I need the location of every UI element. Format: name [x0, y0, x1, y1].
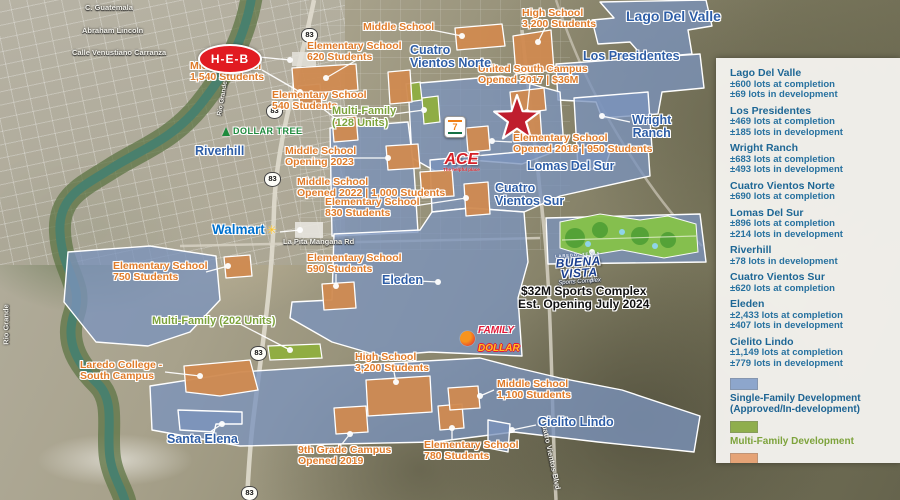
street-label-carranza: Calle Venustiano Carranza — [72, 48, 166, 57]
panel-entry-cuatro-vientos-sur: Cuatro Vientos Sur ±620 lots at completi… — [730, 272, 892, 294]
panel-entry-cuatro-vientos-norte: Cuatro Vientos Norte ±690 lots at comple… — [730, 181, 892, 203]
label-elementary-620: Elementary School620 Students — [307, 41, 402, 63]
panel-entry-riverhill: Riverhill ±78 lots in development — [730, 245, 892, 267]
label-wright-ranch: WrightRanch — [632, 114, 671, 140]
label-elementary-750: Elementary School750 Students — [113, 261, 208, 283]
label-laredo-college: Laredo College -South Campus — [80, 360, 162, 382]
label-united-south-campus: United South CampusOpened 2017 | $36M — [478, 64, 588, 86]
label-middle-school-2023: Middle SchoolOpening 2023 — [285, 146, 356, 168]
dollar-tree-logo: DOLLAR TREE — [222, 126, 303, 136]
label-multi-family-202: Multi-Family (202 Units) — [152, 316, 275, 328]
highway-83-shield: 83 — [264, 172, 281, 187]
walmart-logo: Walmart ✳ — [212, 222, 277, 237]
dollar-tree-icon — [222, 127, 230, 136]
polygon-mf202 — [268, 344, 322, 360]
legend-multi-family: Multi-Family Development — [730, 421, 892, 447]
label-high-school-3200-bottom: High School3,200 Students — [355, 352, 429, 374]
label-santa-elena: Santa Elena — [167, 433, 238, 446]
developments-info-panel: Lago Del Valle ±600 lots at completion ±… — [716, 58, 900, 463]
polygon-es590 — [322, 282, 356, 310]
family-dollar-text-2: DOLLAR — [478, 343, 520, 354]
street-label-la-pita: La Pita Mangana Rd — [283, 237, 354, 246]
ace-tagline: The helpful place — [443, 167, 480, 172]
heb-logo: H-E-B — [198, 44, 262, 74]
single-family-swatch — [730, 378, 758, 390]
street-label-rio-grande: Rio Grande — [2, 304, 11, 344]
polygon-grade9 — [334, 406, 368, 434]
label-9th-grade-campus: 9th Grade CampusOpened 2019 — [298, 445, 391, 467]
label-cielito-lindo: Cielito Lindo — [538, 416, 614, 429]
polygon-ms2023 — [386, 144, 420, 170]
panel-entry-los-presidentes: Los Presidentes ±469 lots at completion … — [730, 106, 892, 139]
highway-83-shield: 83 — [241, 486, 258, 500]
label-middle-school-1100: Middle School1,100 Students — [497, 379, 571, 401]
label-high-school-3200-top: High School3,200 Students — [522, 8, 596, 30]
label-los-presidentes: Los Presidentes — [583, 50, 680, 63]
label-riverhill: Riverhill — [195, 145, 244, 158]
educational-swatch — [730, 453, 758, 463]
polygon-es2018 — [466, 126, 490, 152]
walmart-spark-icon: ✳ — [267, 223, 277, 237]
label-cuatro-vientos-norte: CuatroVientos Norte — [410, 44, 491, 70]
panel-entry-lomas-del-sur: Lomas Del Sur ±896 lots at completion ±2… — [730, 208, 892, 241]
ace-hardware-logo: ACE The helpful place — [443, 152, 480, 172]
map-legend: Single-Family Development (Approved/In-d… — [730, 378, 892, 463]
label-cuatro-vientos-sur: CuatroVientos Sur — [495, 182, 564, 208]
street-label-guatemala: C. Guatemala — [85, 3, 133, 12]
label-elementary-830: Elementary School830 Students — [325, 197, 420, 219]
label-elementary-780: Elementary School780 Students — [424, 440, 519, 462]
aerial-development-map: C. Guatemala Abraham Lincoln Calle Venus… — [0, 0, 900, 500]
polygon-laredo-college — [184, 360, 258, 396]
legend-single-family: Single-Family Development (Approved/In-d… — [730, 378, 892, 415]
label-multi-family-128: Multi-Family(128 Units) — [332, 106, 396, 129]
seven-eleven-text: 7 — [452, 123, 457, 131]
buena-vista-logo: LAREDO, TEXAS BUENA VISTA Sports Complex — [555, 250, 603, 286]
multi-family-swatch — [730, 421, 758, 433]
label-lago-del-valle: Lago Del Valle — [626, 10, 721, 23]
label-elementary-590: Elementary School590 Students — [307, 253, 402, 275]
panel-entry-cielito-lindo: Cielito Lindo ±1,149 lots at completion … — [730, 337, 892, 370]
dollar-tree-text: DOLLAR TREE — [233, 126, 303, 136]
family-dollar-logo: FAMILY DOLLAR — [460, 320, 520, 356]
label-eleden: Eleden — [382, 274, 423, 287]
polygon-ms1100 — [448, 386, 480, 410]
seven-eleven-logo: 7 — [444, 116, 466, 138]
heb-logo-text: H-E-B — [211, 52, 249, 66]
polygon-north-tall — [388, 70, 412, 104]
family-dollar-text-1: FAMILY — [478, 325, 514, 336]
label-lomas-del-sur: Lomas Del Sur — [527, 160, 615, 173]
walmart-text: Walmart — [212, 222, 265, 237]
seven-eleven-green-stripe — [448, 132, 462, 134]
highway-83-shield: 83 — [250, 346, 267, 361]
label-middle-school-top: Middle School — [363, 22, 434, 33]
panel-entry-lago-del-valle: Lago Del Valle ±600 lots at completion ±… — [730, 68, 892, 101]
ace-text: ACE — [443, 152, 480, 167]
panel-entry-wright-ranch: Wright Ranch ±683 lots at completion ±49… — [730, 143, 892, 176]
panel-entry-eleden: Eleden ±2,433 lots at completion ±407 lo… — [730, 299, 892, 332]
street-label-lincoln: Abraham Lincoln — [82, 26, 143, 35]
legend-educational: Educational/University — [730, 453, 892, 463]
label-sports-complex: $32M Sports ComplexEst. Opening July 202… — [518, 285, 649, 311]
family-dollar-icon — [460, 331, 475, 346]
